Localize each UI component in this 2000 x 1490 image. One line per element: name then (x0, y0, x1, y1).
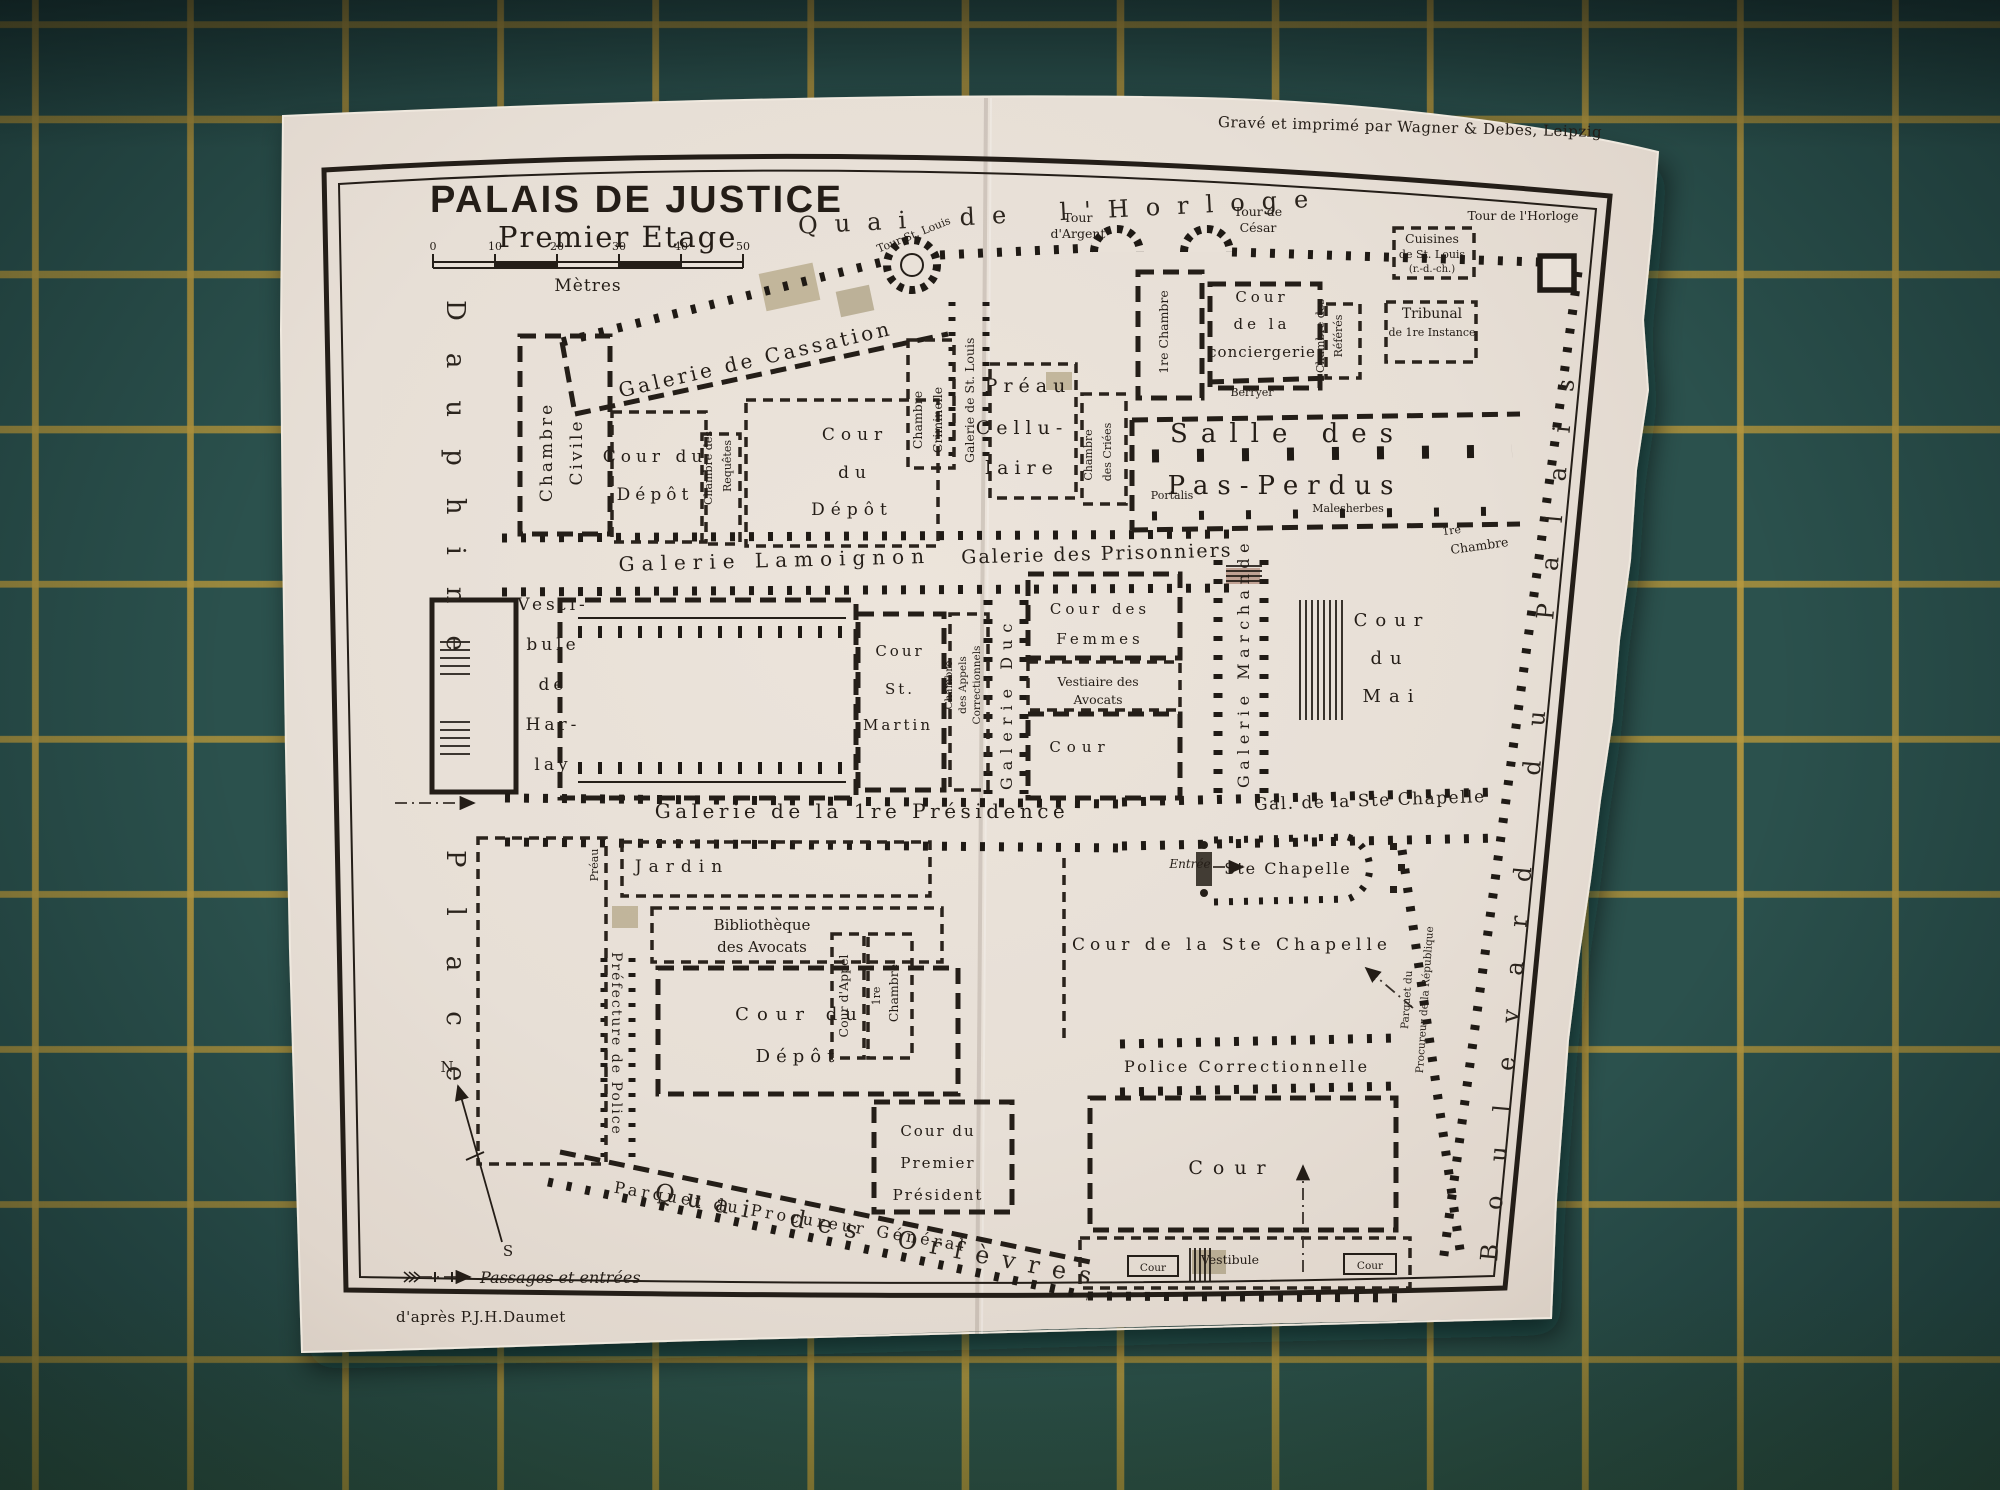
map-sheet-svg: N S 0 10 20 30 40 50 Mètres Passages et … (0, 0, 2000, 1490)
label-preau-cellulaire-3: laire (985, 457, 1059, 479)
label-appels-1: Chambre (943, 661, 955, 710)
label-chambre-criees-1: Chambre (1082, 429, 1095, 480)
label-cour-petite-ouest: Cour (1140, 1262, 1167, 1274)
label-cour-st-martin-1: Cour (875, 642, 924, 660)
author-credit: d'après P.J.H.Daumet (396, 1308, 566, 1326)
map-subtitle: Premier Etage (498, 220, 737, 254)
label-cour-depot-nw-1: Cour du (603, 447, 708, 467)
label-cour-femmes-1: Cour des (1050, 600, 1150, 618)
label-chambre-criminelle-2: Criminelle (930, 387, 945, 453)
map-title: PALAIS DE JUSTICE (430, 179, 843, 221)
label-referes-2: Référés (1332, 314, 1345, 357)
label-cour-du-mai-2: du (1370, 648, 1409, 669)
label-premier-president-1: Cour du (900, 1122, 975, 1140)
label-bibliotheque-2: des Avocats (717, 938, 807, 956)
label-cour-femmes-2: Femmes (1056, 630, 1144, 648)
label-galerie-de-st-louis: Galerie de St. Louis (962, 338, 977, 463)
label-salle-pas-perdus-2: Pas-Perdus (1168, 471, 1403, 501)
label-tribunal-2: de 1re Instance (1388, 326, 1475, 339)
label-conciergerie-3: conciergerie (1208, 343, 1316, 361)
label-cour-ste-chapelle: Cour de la Ste Chapelle (1072, 935, 1392, 955)
label-galerie-duc: Galerie Duc (997, 617, 1016, 790)
label-malesherbes: Malesherbes (1312, 502, 1384, 515)
label-cour-st-martin-2: St. (885, 680, 915, 698)
label-chambre-criees-2: des Criées (1101, 422, 1114, 481)
label-cour-depot-n-2: du (838, 463, 872, 483)
label-portalis: Portalis (1151, 489, 1194, 502)
label-tribunal-1: Tribunal (1402, 306, 1463, 322)
label-vestibule-sud: Vestibule (1200, 1252, 1259, 1267)
label-berryer: Berryer (1230, 386, 1274, 399)
label-bibliotheque-1: Bibliothèque (714, 916, 811, 934)
label-ste-chapelle: Ste Chapelle (1224, 859, 1351, 878)
label-preau-ouest: Préau (588, 849, 601, 882)
label-police-correctionnelle: Police Correctionnelle (1124, 1057, 1370, 1076)
scale-unit-label: Mètres (554, 276, 621, 296)
label-salle-pas-perdus-1: Salle des (1170, 419, 1406, 449)
label-appels-2: des Appels (957, 656, 969, 714)
label-premier-president-3: Président (893, 1186, 984, 1204)
label-cour-depot-nw-2: Dépôt (617, 485, 694, 505)
label-conciergerie-1: Cour (1235, 288, 1288, 306)
label-galerie-marchande: Galerie Marchande (1234, 538, 1253, 788)
label-harlay-5: lay (534, 755, 571, 775)
street-place-dauphine-line1: Dauphine (440, 300, 470, 683)
label-tour-argent-1: Tour (1064, 210, 1093, 225)
label-galerie-presidence: Galerie de la 1re Présidence (655, 799, 1070, 823)
label-preau-cellulaire-1: Préau (985, 375, 1072, 397)
passages-legend-label: Passages et entrées (479, 1268, 641, 1287)
label-vestiaire-1: Vestiaire des (1056, 674, 1138, 689)
label-conciergerie-2: de la (1234, 315, 1291, 333)
label-1re-chambre-est-1: 1re (1441, 523, 1461, 538)
label-harlay-4: Har- (526, 715, 581, 735)
label-harlay-1: Vesti- (516, 595, 589, 615)
label-premier-president-2: Premier (900, 1154, 975, 1172)
label-chambre-requetes-2: Requêtes (721, 440, 734, 492)
scale-tick-0: 0 (430, 240, 437, 253)
label-cour-depot-s-2: Dépôt (756, 1046, 841, 1067)
label-cour-sud: Cour (1188, 1157, 1275, 1179)
label-1re-chambre-sud-2: Chambre (886, 964, 901, 1022)
label-entree: Entrée (1168, 857, 1210, 871)
compass-south-label: S (503, 1242, 513, 1260)
street-place-dauphine-line2: Place (440, 850, 470, 1121)
label-cour-du-mai-3: Mai (1363, 686, 1422, 707)
label-cour-d-appel: Cour d'Appel (836, 955, 851, 1038)
label-harlay-3: de (539, 675, 568, 695)
label-tour-argent-2: d'Argent (1051, 226, 1106, 241)
label-appels-3: Correctionnels (971, 646, 983, 725)
label-cour-st-martin-3: Martin (863, 716, 933, 734)
label-cour-centre: Cour (1049, 738, 1110, 756)
label-vestiaire-2: Avocats (1073, 692, 1123, 707)
label-preau-cellulaire-2: Cellu- (976, 417, 1069, 439)
label-cuisines-3: (r.-d.-ch.) (1409, 264, 1455, 275)
label-cour-du-mai-1: Cour (1354, 610, 1431, 631)
label-1re-chambre-sud-1: 1re (870, 987, 883, 1006)
label-chambre-civile-1: Chambre (537, 402, 557, 502)
tower-horloge-shape (1540, 256, 1574, 290)
scale-tick-50: 50 (736, 240, 750, 253)
label-referes-1: Chambre des (1314, 299, 1327, 373)
photo-of-antique-floor-plan: N S 0 10 20 30 40 50 Mètres Passages et … (0, 0, 2000, 1490)
label-harlay-2: bule (526, 635, 579, 655)
label-prefecture-de-police: Préfecture de Police (608, 952, 624, 1136)
label-cour-depot-n-1: Cour (822, 425, 888, 445)
label-tour-cesar-2: César (1240, 220, 1277, 235)
label-cour-depot-n-3: Dépôt (811, 500, 893, 520)
label-cuisines-2: de St. Louis (1399, 248, 1466, 261)
label-cuisines-1: Cuisines (1405, 231, 1459, 246)
label-chambre-civile-2: Civile (567, 419, 587, 486)
label-1re-chambre-nord: 1re Chambre (1156, 290, 1171, 374)
label-chambre-requetes-1: Chambre des (702, 431, 715, 505)
label-tour-horloge: Tour de l'Horloge (1467, 208, 1578, 223)
label-jardin: Jardin (633, 857, 729, 877)
label-cour-petite-est: Cour (1357, 1260, 1384, 1272)
label-chambre-criminelle-1: Chambre (910, 391, 925, 449)
label-tour-cesar-1: Tour de (1234, 204, 1282, 219)
